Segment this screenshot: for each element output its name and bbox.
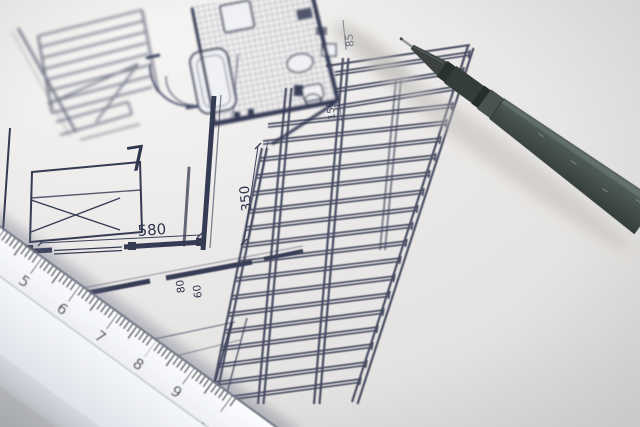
floorplan-photo-svg: 7 580 350 80 60 85 150: [0, 0, 640, 427]
photo-floorplan-scene: 7 580 350 80 60 85 150: [0, 0, 640, 427]
